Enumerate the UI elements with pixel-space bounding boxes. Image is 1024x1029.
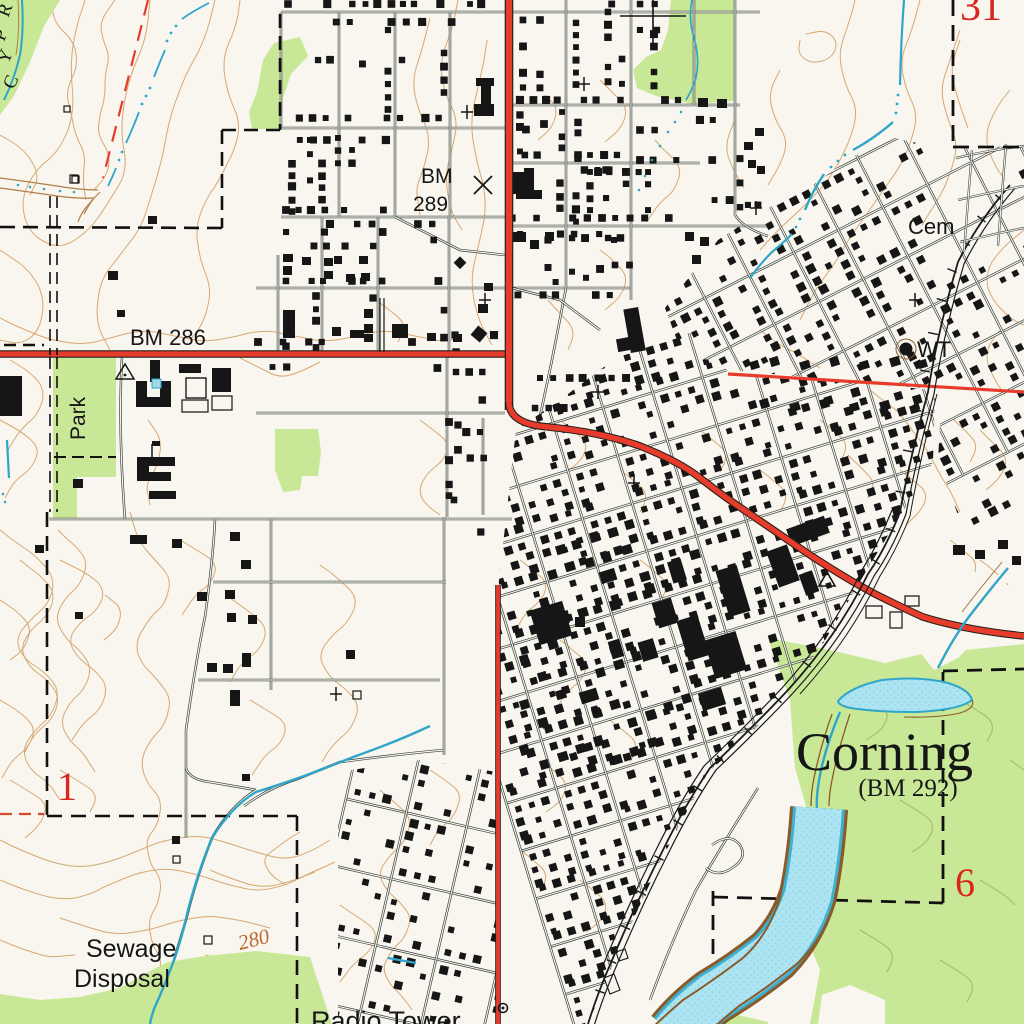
svg-text:31: 31	[960, 0, 1002, 30]
svg-text:BM 286: BM 286	[130, 325, 206, 350]
svg-text:289: 289	[413, 193, 448, 216]
svg-text:WT: WT	[917, 337, 951, 362]
svg-text:1: 1	[57, 764, 77, 809]
svg-text:Park: Park	[67, 396, 90, 440]
svg-text:Disposal: Disposal	[74, 965, 170, 993]
svg-text:6: 6	[955, 860, 975, 905]
svg-text:Corning: Corning	[796, 722, 973, 782]
svg-text:(BM 292): (BM 292)	[858, 775, 957, 802]
svg-text:Cem: Cem	[908, 214, 954, 239]
svg-text:Radio Tower: Radio Tower	[311, 1006, 461, 1024]
svg-text:Sewage: Sewage	[86, 935, 176, 963]
svg-text:BM: BM	[421, 165, 453, 188]
